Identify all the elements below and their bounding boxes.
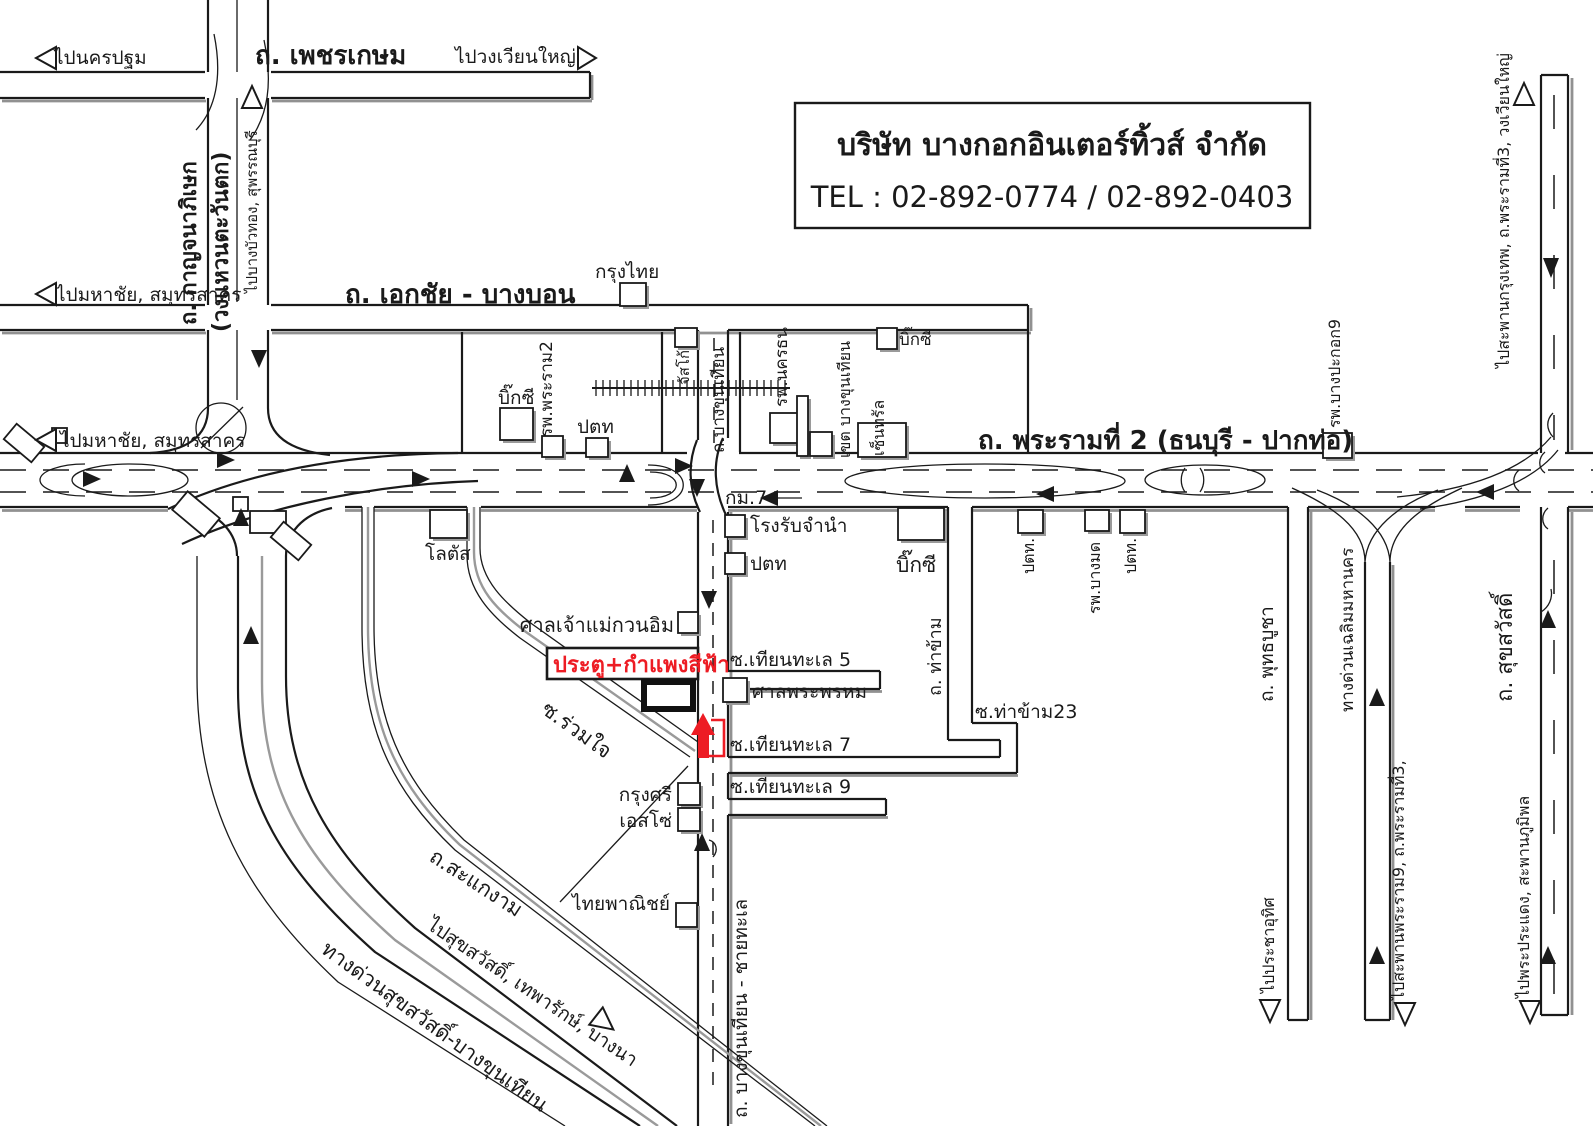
label-bangkhunthian-chaithale: ถ. บางขุนเทียน - ชายทะเล	[730, 899, 753, 1118]
bridge-deck	[233, 497, 248, 511]
label-krungthai: กรุงไทย	[595, 261, 659, 284]
label-jusco: จัสโก้	[675, 350, 693, 385]
building-pawnshop	[725, 515, 748, 540]
road-thakham	[948, 507, 972, 740]
up-arrow	[1369, 688, 1385, 706]
label-bigc-2: บิ๊กซี	[899, 326, 932, 350]
label-soi-thianthale5: ซ.เทียนทะเล 5	[730, 649, 851, 671]
label-ekkachai: ถ. เอกชัย - บางบอน	[345, 280, 576, 310]
right-direction-triangle	[578, 47, 596, 69]
label-ptt-4: ปตท.	[1121, 538, 1140, 574]
label-phutthabucha: ถ. พุทธบูชา	[1256, 606, 1279, 702]
building-ptt-east2	[1120, 510, 1148, 536]
down-direction-triangle	[1260, 1000, 1280, 1022]
label-to-phrapradaeng: ไปพระประแดง, สะพานภูมิพล	[1514, 796, 1534, 1000]
building-jusco	[675, 328, 700, 350]
label-soi-thianthale9: ซ.เทียนทะเล 9	[730, 776, 851, 798]
label-rp-phrarama2: รพ.พระราม2	[537, 341, 557, 437]
up-arrow	[1540, 946, 1556, 964]
label-central: เซ็นทรัล	[868, 400, 888, 456]
label-thakham-rd: ถ. ท่าข้าม	[925, 617, 946, 696]
label-to-nakhonpathom: ไปนครปฐม	[52, 47, 147, 69]
road-suksawat	[1397, 75, 1572, 1015]
down-arrow	[1543, 258, 1559, 278]
down-arrow	[251, 350, 267, 368]
left-direction-triangle	[36, 47, 56, 69]
up-arrow	[1540, 610, 1556, 628]
left-arrow	[1036, 486, 1054, 502]
map-canvas: ประตู+กำแพงสีฟ้า กม.7 ไปนครปฐม ถ. เพชรเก…	[0, 0, 1593, 1126]
label-krungsri: กรุงศรี	[619, 784, 672, 807]
label-ptt-3: ปตท.	[1019, 538, 1038, 574]
label-to-mahachai-bottom: ไปมหาชัย, สมุทรสาคร	[58, 430, 245, 453]
label-rp-nakhonthon: รพ.นครธน	[772, 327, 792, 407]
label-khet-bangkhunthian: เขต บางขุนเทียน	[835, 341, 855, 458]
label-soi-thianthale7: ซ.เทียนทะเล 7	[730, 734, 851, 756]
building-krungthai	[620, 283, 649, 309]
road-phetkasem	[0, 72, 592, 101]
label-ptt-1: ปตท	[577, 416, 614, 438]
building-district-office	[797, 396, 835, 459]
label-sakaengam: ถ.สะแกงาม	[425, 844, 527, 922]
label-to-krungthep-bridge: ไปสะพานกรุงเทพ, ถ.พระรามที่3, วงเวียนใหญ…	[1492, 53, 1514, 370]
building-esso	[678, 808, 703, 834]
label-rp-bangpakok9: รพ.บางปะกอก9	[1325, 319, 1344, 428]
label-suksawat-expressway: ทางด่วนสุขสวัสดิ์-บางขุนเทียน	[316, 933, 554, 1117]
ramp-curves	[1292, 488, 1462, 562]
building-ptt-south	[725, 553, 748, 577]
road-phutthabucha	[1288, 507, 1311, 1020]
label-rama2: ถ. พระรามที่ 2 (ธนบุรี - ปากท่อ)	[978, 421, 1353, 457]
blue-gate-label: ประตู+กำแพงสีฟ้า	[553, 653, 730, 679]
up-arrow	[694, 833, 710, 851]
company-tel: TEL : 02-892-0774 / 02-892-0403	[810, 180, 1294, 214]
median-break-marks	[1181, 468, 1204, 492]
label-to-rama9-bridge: ไปสะพานพระราม9, ถ.พระรามที่3,	[1387, 760, 1408, 1002]
down-direction-triangle	[1520, 1001, 1540, 1023]
up-arrow	[243, 626, 259, 644]
up-direction-triangle	[1514, 83, 1534, 105]
up-arrow	[1369, 946, 1385, 964]
building-guanim-shrine	[678, 612, 701, 636]
label-suksawat-rd: ถ. สุขสวัสดิ์	[1489, 590, 1518, 702]
entrance-arrow	[691, 713, 724, 758]
building-krungsri	[678, 783, 703, 808]
right-arrow	[217, 452, 235, 468]
destination-building	[644, 682, 693, 709]
building-bigc-south	[898, 508, 947, 543]
building-rp-bangmod	[1085, 510, 1112, 534]
u-turn-oval	[845, 464, 1125, 498]
label-soi-ruamjai: ซ.ร่วมใจ	[537, 697, 616, 764]
u-turn-left-end	[40, 464, 85, 496]
building-rp-phrarama2	[542, 436, 566, 460]
building-phra-phrom-shrine	[723, 678, 750, 705]
label-phetkasem: ถ. เพชรเกษม	[255, 41, 406, 71]
right-arrow	[83, 471, 101, 487]
label-to-bangbuathong: ไปบางบัวทอง, สุพรรณบุรี	[243, 130, 262, 294]
building-ptt-north	[586, 438, 611, 460]
soi-thianthale9	[728, 799, 888, 818]
km7-marker: กม.7	[725, 487, 802, 509]
company-info-box: บริษัท บางกอกอินเตอร์ทิ้วส์ จำกัด TEL : …	[795, 103, 1310, 228]
building-scb	[676, 903, 700, 930]
down-direction-triangle	[1395, 1003, 1415, 1025]
label-to-wongwianyai: ไปวงเวียนใหญ่	[453, 46, 576, 68]
company-name: บริษัท บางกอกอินเตอร์ทิ้วส์ จำกัด	[837, 122, 1267, 163]
expressway-chalerm	[1292, 488, 1462, 1020]
label-ptt-2: ปตท	[750, 553, 787, 575]
label-lotus: โลตัส	[425, 542, 471, 565]
label-to-prachauthit: ไปประชาอุทิศ	[1259, 897, 1279, 995]
down-arrow	[701, 591, 717, 609]
label-chalerm-expressway: ทางด่วนเฉลิมมหานคร	[1338, 548, 1358, 712]
label-esso: เอสโซ่	[619, 809, 672, 832]
label-scb: ไทยพาณิชย์	[570, 893, 670, 915]
building-lotus	[430, 510, 470, 541]
map-svg: ประตู+กำแพงสีฟ้า กม.7 ไปนครปฐม ถ. เพชรเก…	[0, 0, 1593, 1126]
label-phra-phrom: ศาลพระพรหม	[752, 681, 867, 703]
label-rp-bangmod: รพ.บางมด	[1085, 542, 1104, 614]
blue-gate-note: ประตู+กำแพงสีฟ้า	[547, 648, 730, 679]
building-bigc-ekkachai	[500, 408, 536, 443]
label-bangkhunthian-rd: ถ.บางขุนเทียน	[709, 346, 729, 453]
bridge-deck	[4, 424, 44, 462]
building-ptt-east1	[1018, 510, 1046, 536]
label-pawnshop: โรงรับจำนำ	[750, 514, 847, 537]
building-bigc-rama2-north	[877, 328, 900, 352]
label-to-mahachai-top: ไปมหาชัย, สมุทรสาคร	[54, 284, 241, 307]
merge-up-arrow	[619, 464, 635, 482]
left-direction-triangle	[36, 283, 56, 305]
label-soi-thakham23: ซ.ท่าข้าม23	[975, 701, 1078, 723]
label-guanim-shrine: ศาลเจ้าแม่กวนอิม	[520, 613, 674, 637]
label-bigc-1: บิ๊กซี	[498, 384, 535, 409]
up-direction-triangle	[242, 86, 262, 108]
ramp-curves	[1397, 437, 1558, 509]
label-bigc-3: บิ๊กซี	[896, 549, 936, 577]
